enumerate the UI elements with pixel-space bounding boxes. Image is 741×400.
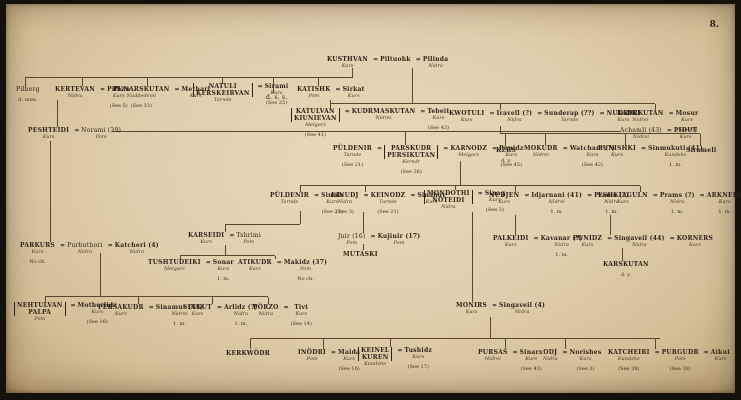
person-name: PALKEIDI [493,235,529,242]
marriage-equals-sign: = [600,110,605,117]
person-name: PIDUT [674,127,697,134]
person-name: Sinarx [520,349,543,356]
note-or-see-reference: (See 26) [401,169,422,175]
person-name: ODJ [543,349,557,356]
clan-caption: Kurs [525,356,537,362]
marriage-equals-sign: = [410,192,415,199]
clan-caption: Pom [346,240,357,246]
clan-caption: Nidra [554,242,569,248]
bracketed-name-stack: PARSKUDRPERSIKUTAN [384,145,438,159]
clan-caption: Kerndr [402,159,420,165]
person-name: KORNERS [677,235,713,242]
person-name: NUDJEN [489,192,519,199]
clan-caption: Nidra [68,93,83,99]
person-name: KUDRMASKUTAN [352,108,416,115]
marriage-equals-sign: = [377,145,382,152]
tree-node-punidz: PUNIDZKurs=Singaveil (44)Nidra=KORNERSKu… [573,235,716,248]
connector-line [610,215,611,235]
marriage-equals-sign: = [563,145,568,152]
clan-caption: Kundshe [364,361,386,367]
clan-caption: Kurs [466,309,478,315]
clan-caption: Kurs [680,134,692,140]
tree-node-dss-note: d. s. s. [266,94,291,101]
person-name: Mosur [676,110,699,117]
marriage-equals-sign: = [669,110,674,117]
person-name: Tebeit [427,108,449,115]
marriage-equals-sign: = [100,86,105,93]
clan-caption: Kurs [498,199,510,205]
clan-caption: Pom [96,134,107,140]
connector-line [330,103,655,104]
marriage-equals-sign: = [71,302,76,309]
clan-caption: Nidrei [375,115,391,121]
clan-caption: Nidra [234,311,249,317]
clan-caption: Kurs [217,266,229,272]
clan-caption: Pom [243,239,254,245]
tree-node-odj: ODJNidra=NorishesKurs(See 3) [543,349,604,372]
tree-node-atikudr: ATIKUDRKurs=Makidz (37)PomNo ch. [238,259,330,282]
person-name: Norami (39) [81,127,121,134]
person-name: d. s. s. [266,94,288,101]
marriage-equals-sign: = [258,83,263,90]
connector-line [50,141,51,242]
clan-caption: Nidra [130,249,145,255]
person-name: SINGUT [183,304,212,311]
clan-caption: Kurs [611,152,623,158]
note-or-see-reference: (See 3) [577,366,595,372]
tree-node-siramell: Siramell [686,147,719,154]
clan-caption: Kurs [582,242,594,248]
clan-caption: Nidra [441,204,456,210]
tree-node-kwotuli: KWOTULIKurs=Iravell (?)Nidra=Sunderap (?… [449,110,643,123]
tree-node-karseidi: KARSEIDIKurs=TshrimiPom [188,232,264,245]
person-name: Sirami [265,83,289,90]
marriage-equals-sign: = [700,192,705,199]
clan-caption: Kurs [715,356,727,362]
person-name: Sunderap (??) [544,110,594,117]
clan-caption: Kurs [348,93,360,99]
person-name: KUSTHVAN [327,56,368,63]
marriage-equals-sign: = [206,259,211,266]
marriage-equals-sign: = [345,108,350,115]
connector-line [25,78,26,86]
person-name: Makidz (37) [284,259,327,266]
tree-node-palkeidi: PALKEIDIKurs=Kavanar (?)Nidra1. m. [493,235,586,258]
clan-caption: Kurs [587,152,599,158]
person-name: MONDOTHI [427,190,470,197]
connector-line [45,296,268,297]
clan-caption: Nidra [259,311,274,317]
marriage-equals-sign: = [149,304,154,311]
marriage-equals-sign: = [364,192,369,199]
person-name: MONIRS [456,302,487,309]
connector-line [490,317,491,338]
connector-line [138,297,139,304]
note-or-see-reference: (See 16) [339,366,360,372]
marriage-equals-sign: = [373,56,378,63]
clan-caption: Pom [675,356,686,362]
clan-caption: Melgars [305,122,326,128]
note-or-see-reference: No ch. [29,259,46,265]
person-name: PURSAS [478,349,508,356]
person-name: KARSKUTAN [603,261,649,268]
person-name: TUSHTUDEIKI [148,259,201,266]
tree-node-katishk: KATISHKPom=SirkatKurs [297,86,368,99]
connector-line [545,134,546,145]
note-or-see-reference: (See 28) [618,366,639,372]
person-name: Prams (?) [660,192,695,199]
note-or-see-reference: 1. m. [671,209,684,215]
person-name: PARSKUDR [387,145,435,152]
person-name: KARSEIDI [188,232,224,239]
clan-caption: Melgars [458,152,479,158]
tree-node-keinel: KEINELKURENKundshe=TushidzKurs(See 17) [358,347,435,370]
marriage-equals-sign: = [534,235,539,242]
tree-node-pilberg: Pilbergd. unm. [16,86,43,103]
person-name: Tivt [294,304,308,311]
connector-line [300,185,640,186]
clan-caption: Kurs [115,311,127,317]
note-or-see-reference: 1. m. [669,162,682,168]
clan-caption: Tarnde [281,199,299,205]
person-name: PUNISHKI [598,145,636,152]
marriage-equals-sign: = [489,110,494,117]
person-name: PUNARSKUTAN [113,86,169,93]
person-name: Jnir (16) [338,233,366,240]
clan-caption: Nidrei [533,152,549,158]
connector-line [250,339,251,349]
clan-caption: Kundshe [665,152,687,158]
person-name: Maida [338,349,360,356]
person-name: Katcheri (4) [115,242,159,249]
marriage-equals-sign: = [371,233,376,240]
marriage-equals-sign: = [416,56,421,63]
clan-caption: Kurs [505,242,517,248]
tree-node-kerkwodr: KERKWÖDR [226,350,273,357]
clan-caption: Kurs [461,117,473,123]
bracketed-name-stack: NEHTULVANPALPA [14,302,66,316]
marriage-equals-sign: = [174,86,179,93]
marriage-equals-sign: = [443,145,448,152]
note-or-see-reference: d. y. [501,158,511,164]
person-name: KERSKEIRVAN [196,90,250,97]
connector-line [225,225,226,232]
note-or-see-reference: (See 17) [408,364,429,370]
page-number: 8. [710,20,719,30]
connector-line [622,248,623,261]
person-name: PARKURS [20,242,55,249]
person-name: KUREN [361,354,389,361]
person-name: PUNIDZ [573,235,602,242]
person-name: Singaveil (4) [499,302,545,309]
connector-line [390,339,391,347]
connector-line [82,78,83,86]
tree-node-parkurs: PARKURSKursNo ch.=PurbuthoriNidra=Katche… [20,242,162,265]
person-name: EINUDJ [331,192,359,199]
person-name: KERS [496,147,516,154]
clan-caption: Kurs [412,354,424,360]
clan-caption: Nidra [78,249,93,255]
person-name: NEHTULVAN [17,302,63,309]
marriage-equals-sign: = [314,192,319,199]
connector-line [363,212,364,233]
marriage-equals-sign: = [284,304,289,311]
person-name: NOTEIDI [427,197,470,204]
clan-caption: Tarnde [561,117,579,123]
person-name: ATIKUDR [238,259,272,266]
note-or-see-reference: 1. m. [550,209,563,215]
clan-caption: Pom [307,356,318,362]
clan-caption: Nidra [670,199,685,205]
clan-caption: Kurs [617,199,629,205]
connector-line [225,245,226,255]
tree-node-kusthvan: KUSTHVANKurs=Piltuohk=PilindaNidra [327,56,451,69]
person-name: KEINEL [361,347,389,354]
marriage-equals-sign: = [74,127,79,134]
clan-caption: Pom [34,316,45,322]
connector-line [225,224,300,225]
connector-line [268,297,269,304]
note-or-see-reference: 1. m. [235,321,248,327]
person-name: PALPA [17,309,63,316]
marriage-equals-sign: = [667,127,672,134]
tree-node-achamli: Achamli (43)Nidrei=PIDUTKurs [620,127,700,140]
note-or-see-reference: d. y. [621,272,631,278]
bracketed-name-stack: KATULVANKIUNIEVAN [291,108,340,122]
person-name: Norishes [570,349,602,356]
connector-line [352,68,353,77]
marriage-equals-sign: = [217,304,222,311]
bracketed-name-stack: MONDOTHINOTEIDI [424,190,473,204]
clan-caption: Kurs [200,239,212,245]
clan-caption: Kurs [32,249,44,255]
person-name: Aikut [711,349,730,356]
scanned-genealogy-plate: 8. KUSTHVANKurs=Piltuohk=PilindaNidraPil… [0,0,741,400]
note-or-see-reference: 1. m. [217,276,230,282]
person-name: KERTEVAN [55,86,95,93]
person-name: Pilinda [423,56,449,63]
clan-caption: Nidrei [549,199,565,205]
person-name: INÖDRI [298,349,326,356]
person-name: ARKNERS [707,192,741,199]
note-or-see-reference: 1. m. [555,252,568,258]
person-name: PURGUDR [662,349,699,356]
person-name: Tshrimi [236,232,261,239]
connector-line [318,78,319,86]
marriage-equals-sign: = [513,349,518,356]
marriage-equals-sign: = [336,86,341,93]
note-or-see-reference: (See 3) [336,209,354,215]
person-name: Tushidz [404,347,432,354]
person-name: KATULVAN [294,108,337,115]
clan-caption: Melgars [164,266,185,272]
marriage-equals-sign: = [492,302,497,309]
tree-node-monirs: MONIRSKurs=Singaveil (4)Nidra [456,302,548,315]
connector-line [147,78,148,86]
connector-line [323,339,324,349]
note-or-see-reference: 1. m. [718,209,731,215]
marriage-equals-sign: = [478,190,483,197]
connector-line [180,255,275,256]
connector-line [25,77,353,78]
person-name: KATISHK [297,86,331,93]
person-name: PÜLDENIR [333,145,372,152]
note-or-see-reference: (See 38) [670,366,691,372]
person-name: PERSIKUTAN [387,152,435,159]
person-name: Sirkat [343,86,365,93]
person-name: KWOTULI [449,110,484,117]
marriage-equals-sign: = [653,192,658,199]
clan-caption: Pom [308,93,319,99]
person-name: PÜLDENIR [270,192,309,199]
clan-caption: Tarnde [214,97,232,103]
person-name: KIUNIEVAN [294,115,337,122]
marriage-equals-sign: = [704,349,709,356]
clan-caption: Kurs [192,311,204,317]
person-name: PERSAKUDR [98,304,144,311]
note-or-see-reference: (See 14) [291,321,312,327]
person-name: NATULI [196,83,250,90]
marriage-equals-sign: = [537,110,542,117]
note-or-see-reference: (See 21) [342,162,363,168]
tree-node-porzo: PÖRZONidra=TivtKurs(See 14) [253,304,315,327]
note-or-see-reference: d. unm. [18,97,37,103]
clan-caption: Nidra [632,242,647,248]
clan-caption: Nidra [428,63,443,69]
clan-caption: Kundshe [618,356,640,362]
marriage-equals-sign: = [229,232,234,239]
clan-caption: Kurs [433,115,445,121]
marriage-equals-sign: = [641,145,646,152]
tree-node-karskutan: KARSKUTANd. y. [603,261,652,278]
marriage-equals-sign: = [607,235,612,242]
clan-caption: Nidrei [633,134,649,140]
paper-background: 8. KUSTHVANKurs=Piltuohk=PilindaNidraPil… [6,4,735,393]
marriage-equals-sign: = [277,259,282,266]
connector-line [212,297,213,304]
clan-caption: Pom [300,266,311,272]
clan-caption: Kurs [681,117,693,123]
tree-node-katulvan: KATULVANKIUNIEVANMelgars(See 41)=KUDRMAS… [291,108,453,138]
connector-line [472,212,473,302]
tree-node-pursas: PURSASNidrei=SinarxKurs(See 41) [478,349,546,372]
tree-node-peshteidi: PESHTEIDIKurs=Norami (39)Pom [28,127,124,140]
person-name: Piltuohk [380,56,411,63]
marriage-equals-sign: = [524,192,529,199]
connector-line [505,339,506,349]
person-name: PÖRZO [253,304,279,311]
clan-caption: Tarnde [344,152,362,158]
tree-node-tushtudeiki: TUSHTUDEIKIMelgars=SonarKurs1. m. [148,259,237,282]
note-or-see-reference: (See 43) [428,125,449,131]
clan-caption: Nidra [507,117,522,123]
person-name: Iravell (?) [496,110,532,117]
note-or-see-reference: No ch. [297,276,314,282]
clan-caption: Pom [394,240,405,246]
person-name: KADRKUTAN [617,110,664,117]
bracketed-name-stack: NATULIKERSKEIRVAN [193,83,253,97]
marriage-equals-sign: = [397,347,402,354]
note-or-see-reference: (See 33) [131,103,152,109]
clan-caption: Nidrei [485,356,501,362]
person-name: Purbuthori [67,242,103,249]
tree-node-jnir: Jnir (16)Pom=Kujinir (17)Pom [338,233,423,246]
clan-caption: Nidra [338,199,353,205]
connector-line [250,338,660,339]
tree-node-katcheiri: KATCHEIRIKundshe(See 28)=PURGUDRPom(See … [608,349,733,372]
clan-caption: Kurs [689,242,701,248]
note-or-see-reference: (See 41) [305,132,326,138]
person-name: MOKUDR [524,145,558,152]
marriage-equals-sign: = [331,349,336,356]
marriage-equals-sign: = [655,349,660,356]
marriage-equals-sign: = [563,349,568,356]
connector-line [500,126,501,133]
person-name: Idjarnani (41) [531,192,582,199]
marriage-equals-sign: = [108,242,113,249]
person-name: PESHTEIDI [28,127,69,134]
person-name: Achamli (43) [620,127,662,134]
person-name: KATCHEIRI [608,349,650,356]
clan-caption: Kurs [43,134,55,140]
marriage-equals-sign: = [670,235,675,242]
clan-caption: Kurs [249,266,261,272]
person-name: ESHKIAGULN [598,192,648,199]
person-name: KARNODZ [450,145,487,152]
clan-caption: Nuddedemi [127,93,156,99]
marriage-equals-sign: = [587,192,592,199]
note-or-see-reference: (See 41) [521,366,542,372]
tree-node-kers: KERSd. y. [496,147,519,164]
connector-line [565,339,566,349]
person-name: Kujinir (17) [378,233,421,240]
tree-node-singut: SINGUTKurs=Arlidz (?)Nidra1. m. [183,304,261,327]
connector-line [655,339,656,349]
tree-node-mutaski: MUTASKI [343,251,381,258]
clan-caption: Nidra [515,309,530,315]
clan-caption: Nidrei [632,117,648,123]
clan-caption: Kurs [295,311,307,317]
clan-caption: Tarnde [379,199,397,205]
person-name: Pilberg [16,86,40,93]
clan-caption: Nidra [543,356,558,362]
person-name: MUTASKI [343,251,378,258]
person-name: KEINODZ [371,192,406,199]
connector-line [515,215,516,235]
tree-node-inodri: INÖDRIPom=MaidaKurs(See 16) [298,349,363,372]
clan-caption: Kurs [580,356,592,362]
clan-caption: Kurs [343,356,355,362]
bracketed-name-stack: KEINELKUREN [358,347,392,361]
tree-node-eshkiaguln: ESHKIAGULNKurs=Prams (?)Nidra1. m.=ARKNE… [598,192,741,215]
clan-caption: Kurs [342,63,354,69]
clan-caption: Kurs [719,199,731,205]
person-name: KERKWÖDR [226,350,270,357]
connector-line [412,68,413,103]
connector-line [330,100,331,108]
marriage-equals-sign: = [420,108,425,115]
person-name: Sonar [213,259,234,266]
person-name: Siramell [686,147,716,154]
marriage-equals-sign: = [60,242,65,249]
person-name: Singaveil (44) [614,235,665,242]
note-or-see-reference: (See 21) [377,209,398,215]
